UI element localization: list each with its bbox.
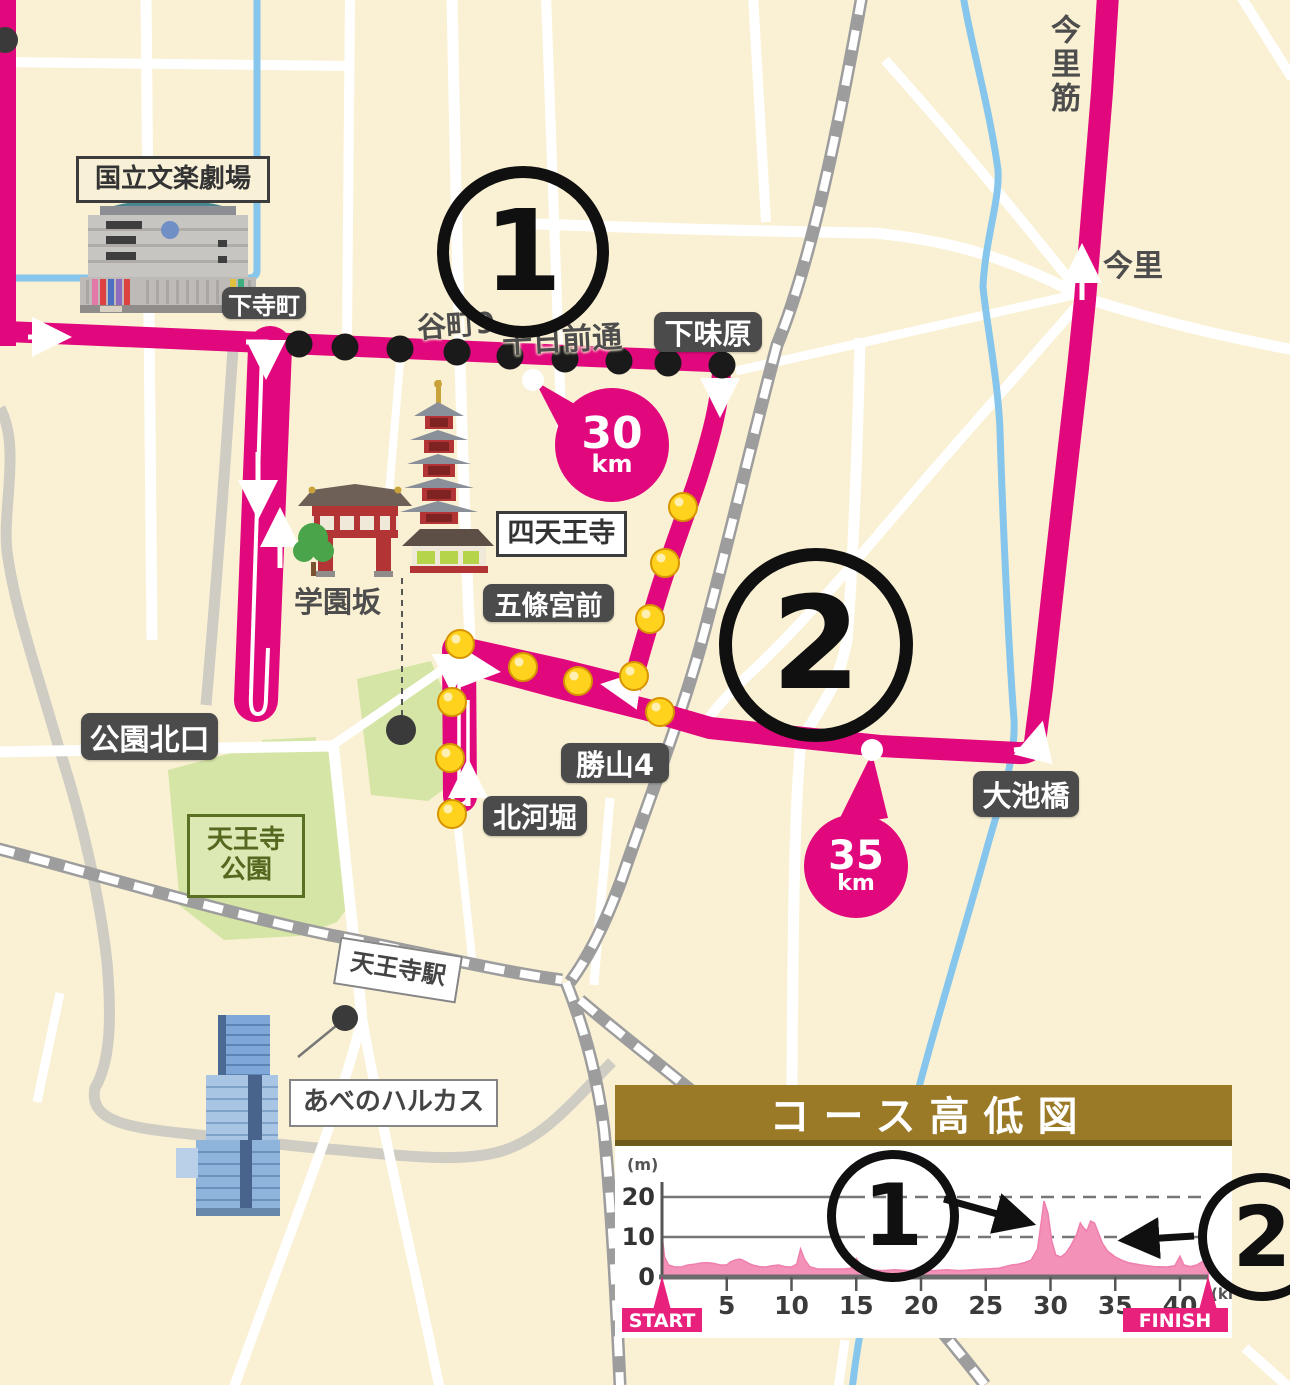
station-pill-kitakawahori: 北河堀 [483,796,587,836]
km-marker-35: 35km [804,814,908,918]
dot-highlight [452,635,461,644]
route-dot-black [332,334,359,361]
x-tick-label: 25 [968,1291,1003,1320]
route-dot-yellow [669,493,697,521]
station-pill-koenkitaguchi: 公園北口 [81,713,218,760]
circled-number-1-chart: 1 [827,1150,959,1282]
route-dot-yellow [438,688,466,716]
route-dot-black [286,331,313,358]
x-tick-label: 20 [904,1291,939,1320]
dot-highlight [657,554,666,563]
route-dot-yellow [436,744,464,772]
dot-highlight [642,610,651,619]
street-imazatosuji: 今里筋 [1040,14,1084,116]
route-dot-black [709,352,736,379]
shitennoji-hall-illustration [402,529,494,573]
course-map: コース高低図 01020(m)510152025303540(km)STARTF… [0,0,1290,1385]
x-tick-label: 5 [718,1291,735,1320]
route-dot-yellow [620,662,648,690]
km30-point-dot [522,369,544,391]
route-dot-yellow [438,800,466,828]
dot-highlight [444,805,453,814]
x-tick-label: 15 [839,1291,874,1320]
km-marker-35-value: 35 [828,838,884,874]
street-gakuenzaka: 学園坂 [294,579,381,621]
street-imazato: 今里 [1103,241,1163,285]
route-dot-yellow [446,630,474,658]
dot-highlight [444,693,453,702]
route-dot-yellow [646,698,674,726]
station-pill-katsuyama4: 勝山4 [561,743,669,783]
elevation-chart-header: コース高低図 [615,1085,1232,1146]
finish-label: FINISH [1139,1310,1212,1332]
dot-highlight [515,658,524,667]
km-marker-30-value: 30 [581,414,642,454]
circled-number-2-map: 2 [719,548,913,742]
route-dot-black [387,336,414,363]
station-pill-oikebashi: 大池橋 [973,771,1079,817]
infobox-national-bunraku-theatre: 国立文楽劇場 [76,156,270,203]
route-dot-yellow [564,667,592,695]
dot-highlight [675,498,684,507]
circled-number-1-map: 1 [437,166,609,338]
dot-highlight [652,703,661,712]
station-pill-shimoteramachi: 下寺町 [222,287,306,319]
km35-point-dot [861,739,883,761]
dot-highlight [570,672,579,681]
x-tick-label: 30 [1033,1291,1068,1320]
start-pin [653,1276,671,1310]
km-marker-35-unit: km [837,874,875,894]
poi-dot [332,1005,358,1031]
station-pill-gojogumae: 五條宮前 [483,584,614,622]
km-marker-30: 30km [555,388,669,502]
poi-dot [386,715,416,745]
elevation-chart-title: コース高低図 [756,1084,1092,1142]
start-label: START [629,1310,696,1332]
station-pill-shimoajihara: 下味原 [654,312,762,352]
y-tick-label: 20 [622,1183,655,1211]
infobox-tennoji-park: 天王寺 公園 [187,814,305,898]
y-axis-unit: (m) [627,1155,658,1174]
abeno-harukas-illustration [176,1015,280,1216]
infobox-shitennoji: 四天王寺 [496,511,627,557]
route-dot-yellow [636,605,664,633]
railway-south-branch [566,982,620,1385]
y-tick-label: 0 [638,1263,655,1291]
y-tick-label: 10 [622,1223,655,1251]
route-dot-yellow [509,653,537,681]
route-dot-black [655,350,682,377]
x-tick-label: 10 [774,1291,809,1320]
dot-highlight [442,749,451,758]
dot-highlight [626,667,635,676]
infobox-abeno-harukas: あべのハルカス [289,1079,498,1127]
km-marker-30-unit: km [592,454,633,476]
route-dot-yellow [651,549,679,577]
